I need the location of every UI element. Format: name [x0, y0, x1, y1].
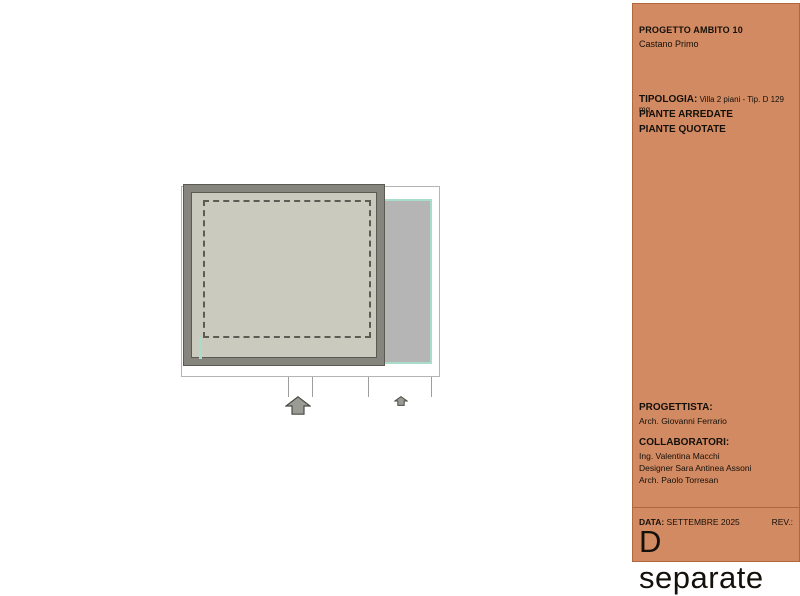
- boundary-tick: [368, 377, 369, 397]
- collaborator-name: Ing. Valentina Macchi: [639, 451, 793, 461]
- upper-floor-dashed-outline: [203, 200, 371, 338]
- project-title: PROGETTO AMBITO 10: [639, 25, 793, 35]
- drawing-type-2: PIANTE QUOTATE: [639, 124, 793, 135]
- designer-label: PROGETTISTA:: [639, 402, 793, 413]
- project-location: Castano Primo: [639, 39, 793, 49]
- sheet-title: D separate: [639, 524, 793, 596]
- drawing-sheet: PROGETTO AMBITO 10 Castano Primo TIPOLOG…: [0, 0, 800, 565]
- boundary-tick: [288, 377, 289, 397]
- footer-divider: [633, 507, 799, 508]
- boundary-tick: [312, 377, 313, 397]
- entrance-arrow-small-icon: [394, 396, 408, 406]
- drawing-type-1: PIANTE ARREDATE: [639, 109, 793, 120]
- boundary-tick: [431, 377, 432, 397]
- collaborator-name: Designer Sara Antinea Assoni: [639, 463, 793, 473]
- entrance-arrow-large-icon: [285, 396, 311, 415]
- designer-name: Arch. Giovanni Ferrario: [639, 416, 793, 426]
- floor-plan: [0, 0, 632, 565]
- collaborator-name: Arch. Paolo Torresan: [639, 475, 793, 485]
- typology-label: TIPOLOGIA:: [639, 94, 697, 105]
- garden-area: [382, 199, 432, 364]
- wall-opening-marker: [199, 337, 202, 359]
- title-block-panel: PROGETTO AMBITO 10 Castano Primo TIPOLOG…: [632, 3, 800, 562]
- collaborators-label: COLLABORATORI:: [639, 437, 793, 448]
